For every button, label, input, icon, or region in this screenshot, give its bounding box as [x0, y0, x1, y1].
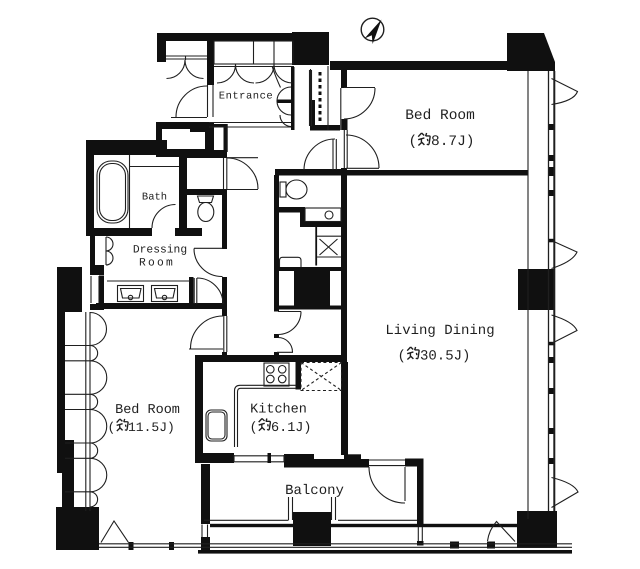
svg-text:Balcony: Balcony [285, 483, 344, 499]
svg-text:(: ( [108, 420, 116, 435]
svg-text:(: ( [409, 134, 418, 150]
svg-text:Dressing: Dressing [133, 244, 187, 257]
svg-text:Room: Room [139, 258, 175, 270]
svg-text:8.7J): 8.7J) [431, 134, 475, 150]
svg-text:Entrance: Entrance [219, 91, 273, 103]
svg-text:Living Dining: Living Dining [385, 323, 494, 339]
svg-text:Bath: Bath [142, 192, 167, 204]
svg-text:(: ( [398, 349, 406, 365]
svg-text:Bed Room: Bed Room [115, 403, 180, 418]
svg-text:11.5J): 11.5J) [128, 420, 175, 435]
svg-text:Kitchen: Kitchen [250, 403, 307, 418]
svg-text:(: ( [250, 421, 258, 436]
svg-text:6.1J): 6.1J) [271, 421, 312, 436]
svg-text:30.5J): 30.5J) [420, 349, 470, 365]
svg-text:Bed Room: Bed Room [405, 108, 475, 124]
